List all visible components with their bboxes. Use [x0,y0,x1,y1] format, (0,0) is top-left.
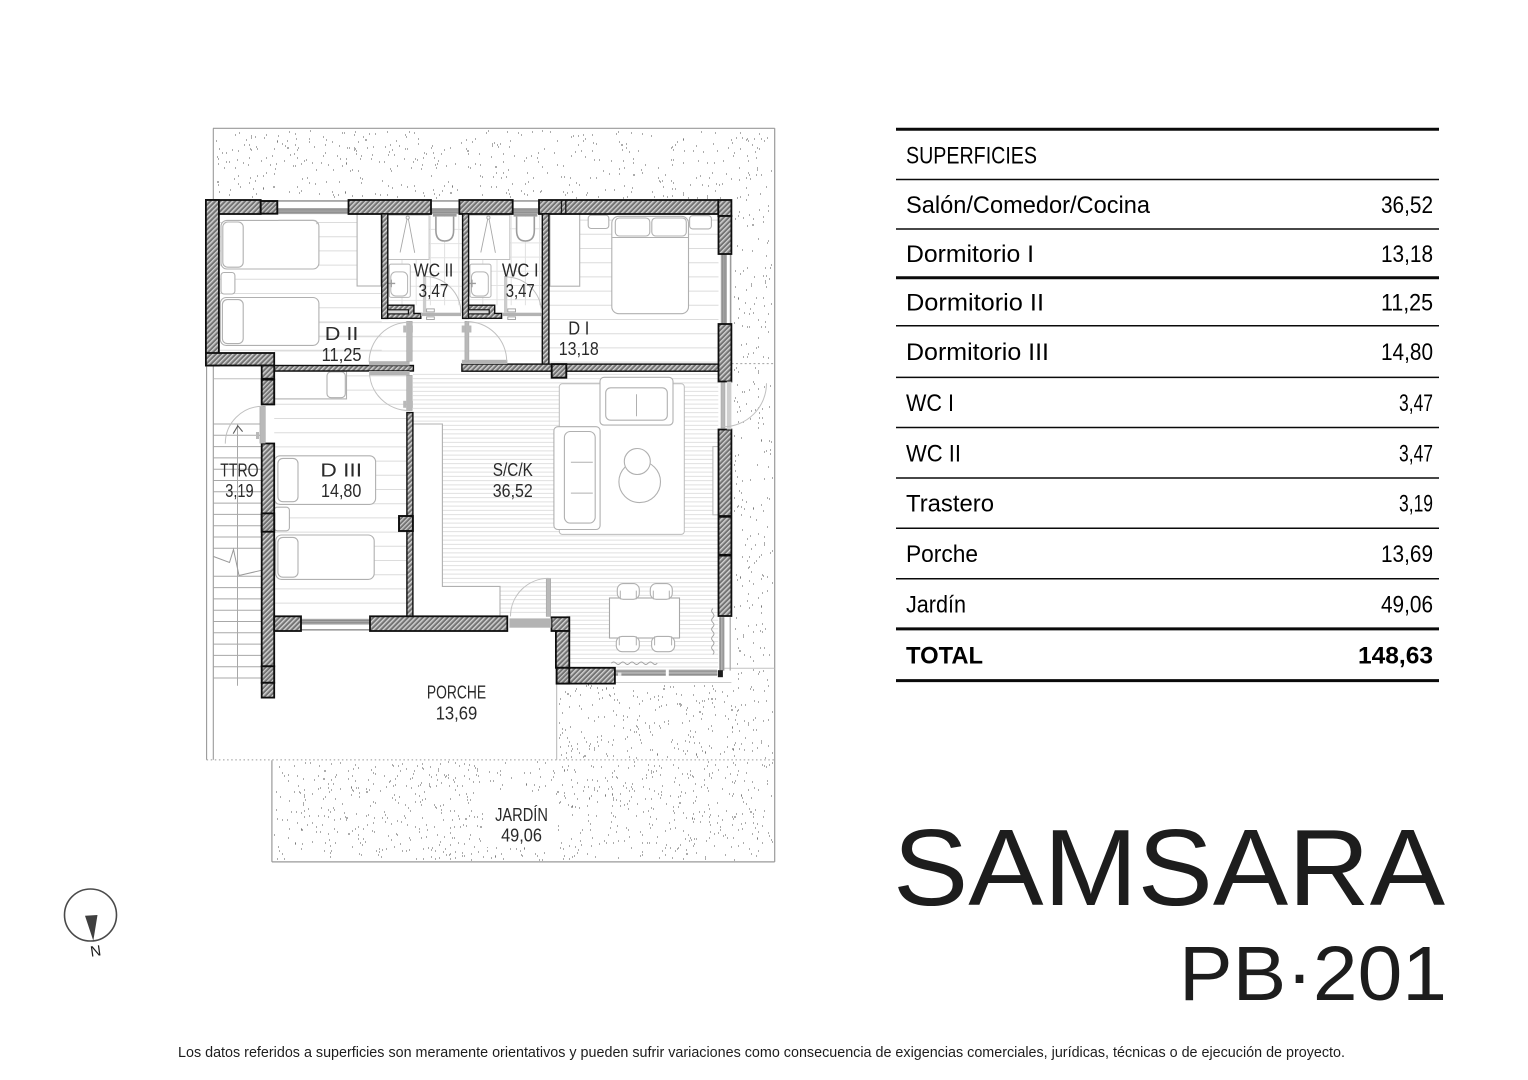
svg-text:Dormitorio II: Dormitorio II [906,289,1044,316]
svg-text:14,80: 14,80 [1381,339,1433,366]
svg-text:WC I: WC I [906,390,954,417]
svg-text:49,06: 49,06 [501,825,542,846]
svg-text:TOTAL: TOTAL [906,642,983,669]
svg-text:WC II: WC II [906,440,961,467]
svg-text:3,47: 3,47 [1399,390,1433,417]
svg-text:13,18: 13,18 [559,338,599,359]
svg-text:Jardín: Jardín [906,592,966,619]
svg-text:13,18: 13,18 [1381,241,1433,268]
svg-text:11,25: 11,25 [1381,289,1433,316]
svg-text:36,52: 36,52 [1381,192,1433,219]
svg-text:WC I: WC I [502,259,539,280]
svg-text:JARDÍN: JARDÍN [495,804,548,825]
svg-text:PB·201: PB·201 [1179,931,1447,1017]
svg-text:Salón/Comedor/Cocina: Salón/Comedor/Cocina [906,192,1151,219]
svg-text:SUPERFICIES: SUPERFICIES [906,143,1037,170]
svg-text:Los datos referidos a superfic: Los datos referidos a superficies son me… [178,1044,1345,1061]
svg-text:148,63: 148,63 [1358,642,1433,669]
svg-text:Dormitorio I: Dormitorio I [906,241,1034,268]
svg-text:Dormitorio III: Dormitorio III [906,339,1049,366]
svg-text:13,69: 13,69 [436,702,478,723]
svg-text:3,47: 3,47 [419,280,449,301]
svg-text:PORCHE: PORCHE [427,682,486,703]
svg-text:3,47: 3,47 [1399,440,1433,467]
svg-text:D II: D II [325,323,359,344]
svg-text:D III: D III [320,460,362,481]
svg-text:3,19: 3,19 [1399,491,1433,518]
svg-text:Trastero: Trastero [906,491,994,518]
svg-text:3,19: 3,19 [225,480,253,501]
svg-text:49,06: 49,06 [1381,592,1433,619]
svg-text:TTRO: TTRO [220,460,258,481]
svg-text:SAMSARA: SAMSARA [893,807,1445,929]
svg-text:Porche: Porche [906,541,978,568]
svg-text:13,69: 13,69 [1381,541,1433,568]
svg-text:14,80: 14,80 [321,480,361,501]
svg-text:D I: D I [568,318,589,339]
svg-text:3,47: 3,47 [506,280,535,301]
svg-text:36,52: 36,52 [493,480,533,501]
svg-text:S/C/K: S/C/K [493,459,534,480]
svg-text:WC II: WC II [414,259,454,280]
svg-text:11,25: 11,25 [322,344,362,365]
